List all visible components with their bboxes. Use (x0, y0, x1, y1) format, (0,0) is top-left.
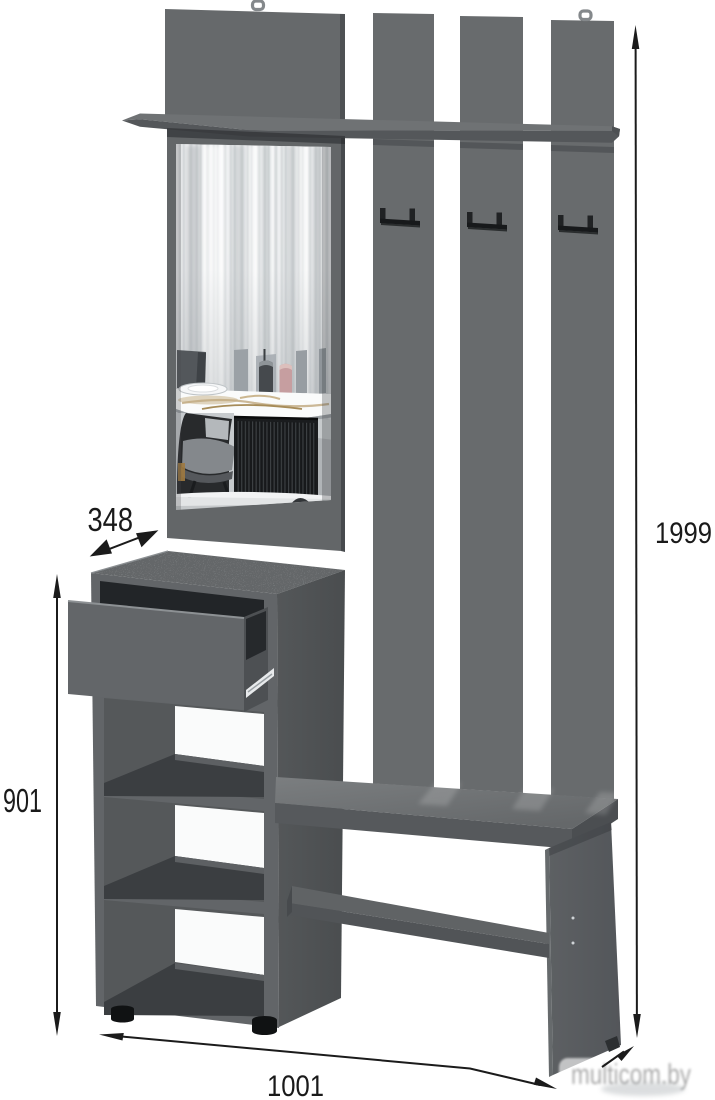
svg-text:1001: 1001 (267, 1070, 324, 1100)
svg-text:1999: 1999 (655, 517, 712, 550)
svg-text:348: 348 (88, 501, 134, 538)
svg-text:901: 901 (3, 782, 42, 819)
